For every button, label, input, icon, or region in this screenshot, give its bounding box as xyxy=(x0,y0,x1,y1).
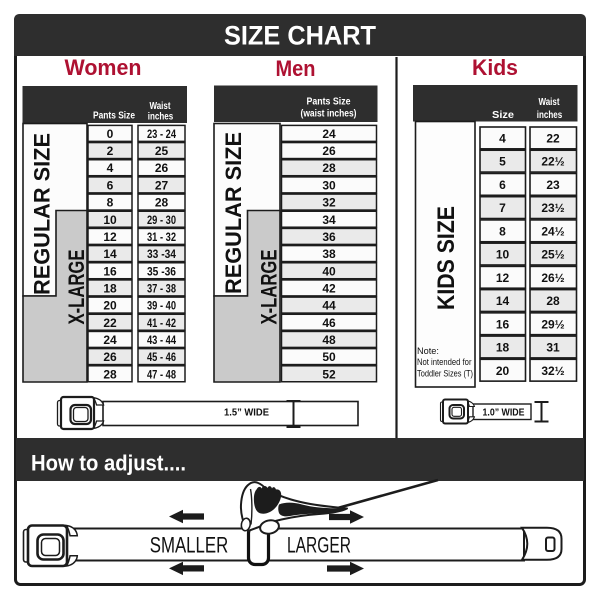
svg-text:16: 16 xyxy=(103,264,117,278)
svg-text:6: 6 xyxy=(107,178,114,192)
svg-text:5: 5 xyxy=(499,155,506,169)
svg-text:45 - 46: 45 - 46 xyxy=(147,350,176,364)
svg-text:LARGER: LARGER xyxy=(287,533,351,558)
svg-text:28: 28 xyxy=(546,294,560,308)
svg-text:39 - 40: 39 - 40 xyxy=(147,299,176,313)
svg-text:4: 4 xyxy=(107,161,114,175)
svg-text:37 - 38: 37 - 38 xyxy=(147,281,176,295)
svg-text:Toddler Sizes (T): Toddler Sizes (T) xyxy=(417,369,473,379)
svg-text:12: 12 xyxy=(496,271,510,285)
svg-text:28: 28 xyxy=(155,196,169,210)
svg-text:52: 52 xyxy=(322,367,336,381)
svg-text:Pants Size: Pants Size xyxy=(93,111,135,122)
svg-text:30: 30 xyxy=(322,178,336,192)
svg-text:32: 32 xyxy=(322,196,336,210)
svg-text:REGULAR SIZE: REGULAR SIZE xyxy=(30,133,55,295)
svg-text:33 -34: 33 -34 xyxy=(147,247,176,261)
svg-text:44: 44 xyxy=(322,299,336,313)
svg-text:28: 28 xyxy=(322,161,336,175)
svg-text:How to adjust....: How to adjust.... xyxy=(31,451,186,476)
svg-text:Men: Men xyxy=(276,56,316,81)
svg-text:24: 24 xyxy=(322,127,336,141)
svg-text:Not intended for: Not intended for xyxy=(417,357,472,367)
svg-text:SIZE CHART: SIZE CHART xyxy=(224,21,376,51)
svg-text:Women: Women xyxy=(65,55,142,80)
svg-text:25: 25 xyxy=(155,144,169,158)
svg-text:4: 4 xyxy=(499,132,506,146)
svg-text:42: 42 xyxy=(322,281,336,295)
svg-text:Size: Size xyxy=(492,110,514,121)
svg-text:12: 12 xyxy=(103,230,117,244)
svg-text:40: 40 xyxy=(322,264,336,278)
svg-text:23 - 24: 23 - 24 xyxy=(147,127,176,141)
svg-text:23½: 23½ xyxy=(541,201,564,215)
svg-text:KIDS SIZE: KIDS SIZE xyxy=(433,206,460,310)
svg-text:16: 16 xyxy=(496,317,510,331)
svg-text:18: 18 xyxy=(103,281,117,295)
svg-text:Kids: Kids xyxy=(472,55,518,80)
svg-text:22: 22 xyxy=(103,316,117,330)
svg-text:36: 36 xyxy=(322,230,336,244)
svg-text:8: 8 xyxy=(499,224,506,238)
svg-text:29½: 29½ xyxy=(541,317,564,331)
svg-text:0: 0 xyxy=(107,127,114,141)
svg-text:24½: 24½ xyxy=(541,224,564,238)
svg-text:43 - 44: 43 - 44 xyxy=(147,333,176,347)
svg-text:47 - 48: 47 - 48 xyxy=(147,367,176,381)
svg-text:28: 28 xyxy=(103,367,117,381)
svg-text:48: 48 xyxy=(322,333,336,347)
svg-text:22: 22 xyxy=(546,132,560,146)
svg-text:20: 20 xyxy=(496,364,510,378)
svg-text:SMALLER: SMALLER xyxy=(150,533,229,558)
svg-text:27: 27 xyxy=(155,178,169,192)
svg-text:38: 38 xyxy=(322,247,336,261)
svg-text:Pants Size: Pants Size xyxy=(307,97,351,108)
svg-text:24: 24 xyxy=(103,333,117,347)
svg-text:1.0” WIDE: 1.0” WIDE xyxy=(483,408,525,419)
svg-text:Waist: Waist xyxy=(539,97,561,108)
svg-text:25½: 25½ xyxy=(541,248,564,262)
svg-text:14: 14 xyxy=(103,247,117,261)
svg-text:Note:: Note: xyxy=(417,346,439,356)
svg-text:26: 26 xyxy=(103,350,117,364)
svg-text:29 - 30: 29 - 30 xyxy=(147,213,176,227)
svg-text:10: 10 xyxy=(496,248,510,262)
svg-text:6: 6 xyxy=(499,178,506,192)
svg-text:26: 26 xyxy=(155,161,169,175)
svg-text:REGULAR SIZE: REGULAR SIZE xyxy=(221,132,246,294)
svg-text:34: 34 xyxy=(322,213,336,227)
svg-text:31: 31 xyxy=(546,341,560,355)
svg-text:7: 7 xyxy=(499,201,506,215)
svg-text:35 -36: 35 -36 xyxy=(147,264,176,278)
svg-text:(waist inches): (waist inches) xyxy=(301,109,357,120)
svg-text:1.5” WIDE: 1.5” WIDE xyxy=(224,407,269,419)
svg-text:31 - 32: 31 - 32 xyxy=(147,230,176,244)
svg-text:41 - 42: 41 - 42 xyxy=(147,316,176,330)
svg-text:26½: 26½ xyxy=(541,271,564,285)
svg-text:14: 14 xyxy=(496,294,510,308)
svg-text:10: 10 xyxy=(103,213,117,227)
svg-text:inches: inches xyxy=(148,112,174,123)
svg-text:46: 46 xyxy=(322,316,336,330)
svg-text:20: 20 xyxy=(103,299,117,313)
svg-text:22½: 22½ xyxy=(541,155,564,169)
svg-text:X-LARGE: X-LARGE xyxy=(64,250,89,325)
svg-text:8: 8 xyxy=(107,196,114,210)
svg-text:32½: 32½ xyxy=(541,364,564,378)
svg-text:26: 26 xyxy=(322,144,336,158)
svg-text:X-LARGE: X-LARGE xyxy=(257,250,282,325)
svg-text:2: 2 xyxy=(107,144,114,158)
svg-text:50: 50 xyxy=(322,350,336,364)
svg-text:23: 23 xyxy=(546,178,560,192)
svg-text:18: 18 xyxy=(496,341,510,355)
svg-text:Waist: Waist xyxy=(150,101,172,112)
svg-text:inches: inches xyxy=(537,110,563,121)
